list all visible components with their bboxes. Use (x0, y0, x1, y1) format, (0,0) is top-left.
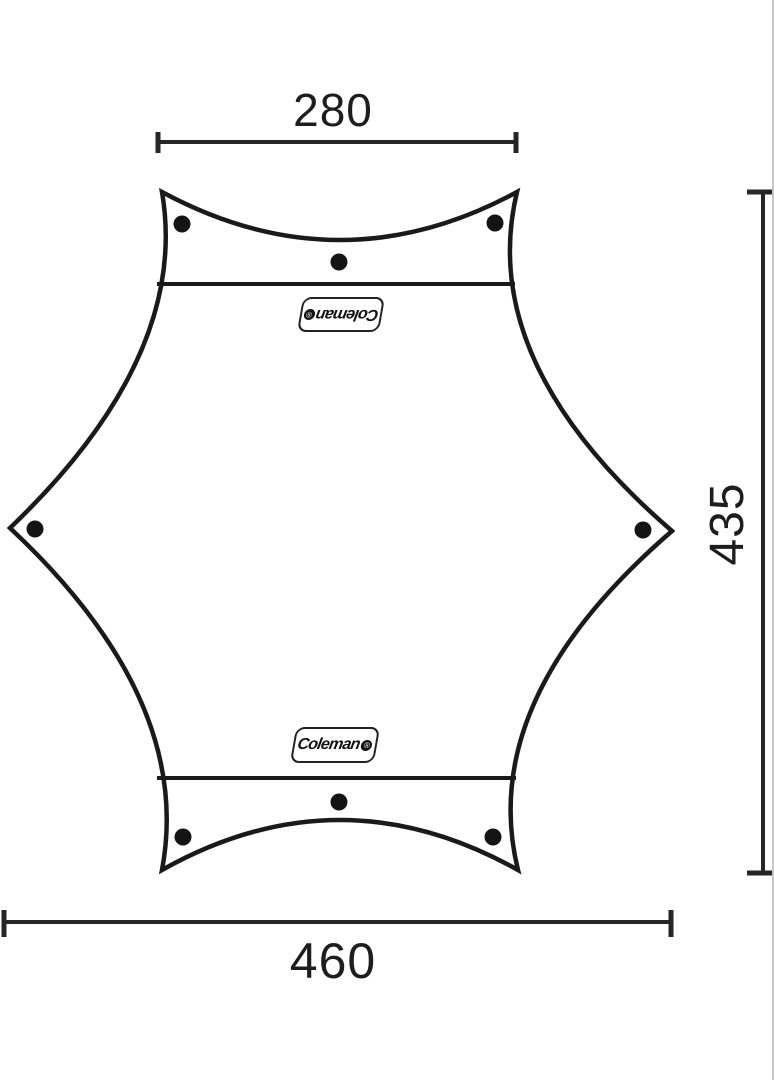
grommet-dot (487, 215, 504, 232)
coleman-logo-text: Coleman (296, 736, 361, 754)
grommet-dot (485, 829, 502, 846)
tarp-outline (10, 192, 672, 870)
grommet-dot (331, 794, 348, 811)
side-height-label: 435 (704, 449, 752, 599)
coleman-logo-badge-bottom: Coleman ® (290, 727, 380, 763)
registered-mark-icon: ® (303, 309, 316, 320)
coleman-logo-badge-top: Coleman ® (297, 297, 385, 332)
coleman-logo-text: Coleman (315, 306, 380, 324)
bottom-width-label: 460 (253, 936, 413, 986)
grommet-dot (174, 216, 191, 233)
grommet-dot (331, 254, 348, 271)
registered-mark-icon: ® (361, 740, 374, 751)
top-width-label: 280 (253, 87, 413, 133)
diagram-canvas (0, 0, 774, 1080)
grommet-dot (635, 522, 652, 539)
grommet-dot (27, 521, 44, 538)
tarp-dimension-diagram: 280 460 435 Coleman ® Coleman ® (0, 0, 774, 1080)
grommet-dot (175, 829, 192, 846)
